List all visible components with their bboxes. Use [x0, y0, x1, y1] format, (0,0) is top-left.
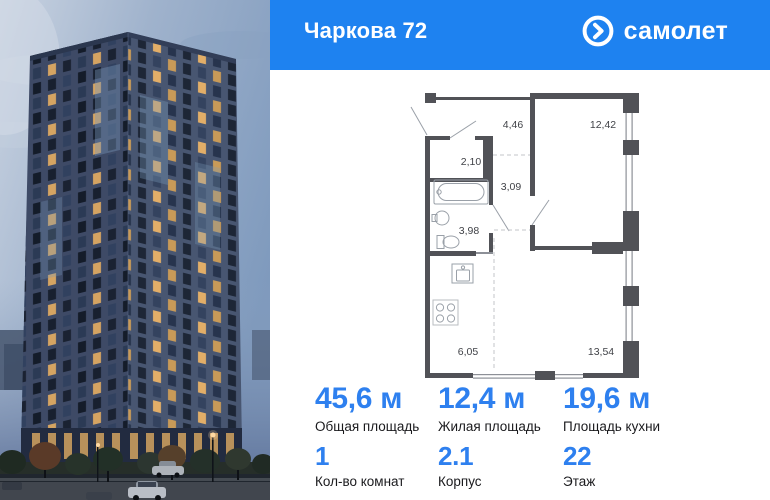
room-area-label: 2,10	[461, 156, 482, 168]
detail-floor: 22 Этаж	[563, 443, 713, 489]
door-swings	[411, 107, 549, 231]
window	[473, 372, 535, 380]
arrow-circle-icon	[581, 14, 615, 48]
plan-walls	[425, 93, 639, 380]
detail-value: 22	[563, 443, 713, 469]
room-area-label: 3,09	[501, 181, 522, 193]
building-photo-illustration	[0, 0, 270, 500]
header-bar: Чаркова 72 самолет	[270, 0, 770, 70]
stat-kitchen-area: 19,6 м Площадь кухни	[563, 384, 713, 434]
room-area-label: 3,98	[459, 225, 480, 237]
building-photo	[0, 0, 270, 500]
tower	[21, 32, 242, 450]
room-area-labels: 4,46 12,42 2,10 3,09 3,98 6,05 13,54	[458, 119, 617, 358]
window	[623, 306, 636, 341]
toilet-icon	[437, 236, 459, 249]
washbasin-icon	[432, 211, 449, 225]
room-area-label: 12,42	[590, 119, 616, 131]
room-area-label: 4,46	[503, 119, 524, 131]
stat-value: 19,6 м	[563, 384, 713, 414]
window	[623, 113, 636, 140]
window	[555, 372, 583, 380]
info-panel: Чаркова 72 самолет	[270, 0, 770, 500]
bathtub-icon	[434, 180, 488, 204]
detail-label: Этаж	[563, 474, 713, 489]
listing-card: Чаркова 72 самолет	[0, 0, 770, 500]
window	[623, 251, 636, 286]
stove-icon	[433, 300, 458, 325]
brand-name: самолет	[624, 17, 728, 46]
stat-label: Площадь кухни	[563, 419, 713, 434]
floor-plan: 4,46 12,42 2,10 3,09 3,98 6,05 13,54	[423, 91, 645, 383]
room-area-label: 6,05	[458, 346, 479, 358]
project-title: Чаркова 72	[304, 18, 427, 44]
kitchen-sink-icon	[452, 264, 473, 283]
samolet-logo[interactable]: самолет	[581, 14, 728, 48]
window	[623, 155, 636, 211]
room-area-label: 13,54	[588, 346, 614, 358]
